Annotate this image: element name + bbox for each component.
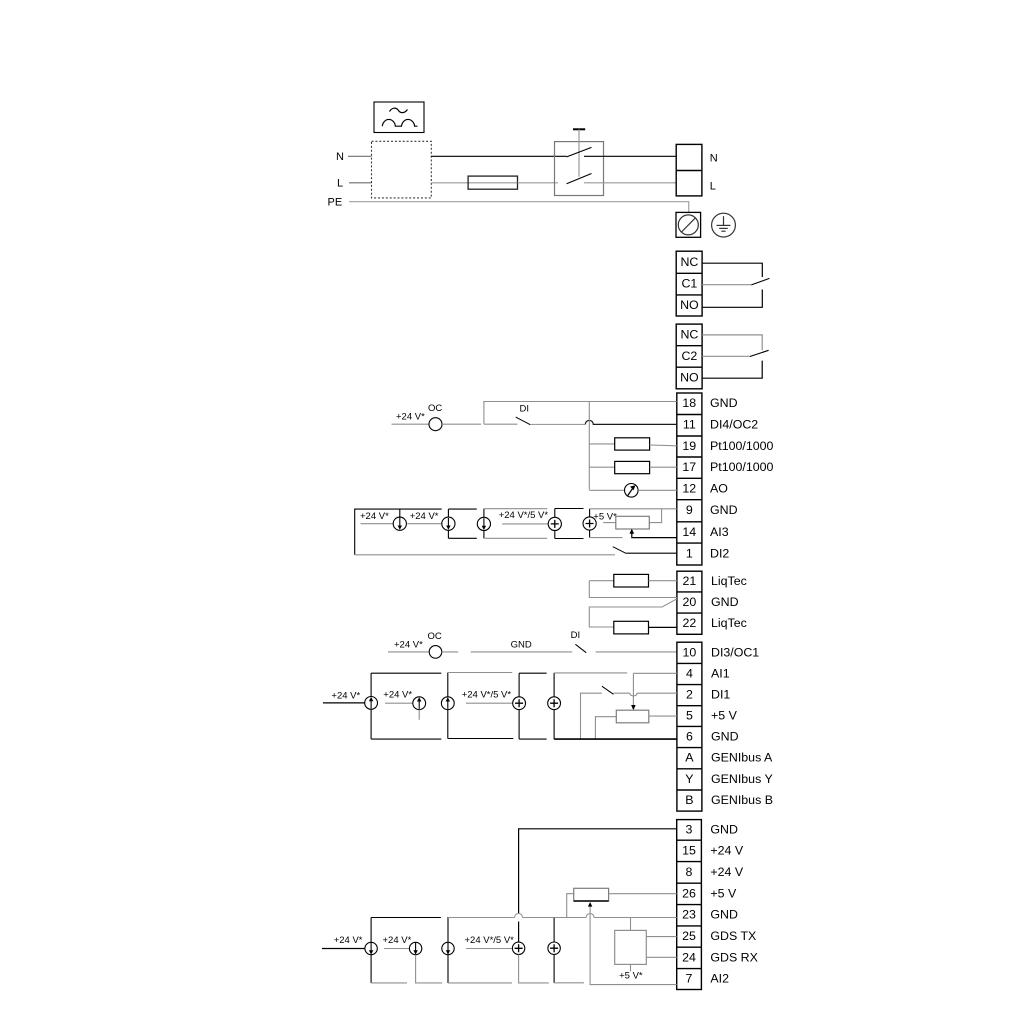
svg-text:7: 7 xyxy=(686,972,693,986)
svg-text:+24 V: +24 V xyxy=(710,865,743,879)
svg-text:DI: DI xyxy=(571,630,581,641)
svg-text:C1: C1 xyxy=(681,277,697,291)
svg-text:5: 5 xyxy=(686,709,693,723)
svg-text:AO: AO xyxy=(710,482,728,496)
svg-text:+24 V*: +24 V* xyxy=(331,690,360,701)
svg-text:N: N xyxy=(710,153,718,165)
svg-text:Pt100/1000: Pt100/1000 xyxy=(710,460,773,474)
svg-text:GND: GND xyxy=(710,503,738,517)
svg-text:+24 V: +24 V xyxy=(710,843,743,857)
svg-text:1: 1 xyxy=(686,547,693,561)
svg-text:14: 14 xyxy=(682,525,696,539)
svg-text:26: 26 xyxy=(682,886,696,900)
svg-text:GDS RX: GDS RX xyxy=(710,950,758,964)
svg-text:GENIbus Y: GENIbus Y xyxy=(711,772,773,786)
svg-text:DI3/OC1: DI3/OC1 xyxy=(711,645,759,659)
svg-text:DI2: DI2 xyxy=(710,547,729,561)
svg-text:+24 V*/5 V*: +24 V*/5 V* xyxy=(499,510,549,521)
svg-text:+5 V: +5 V xyxy=(711,709,738,723)
svg-text:DI: DI xyxy=(520,404,530,415)
svg-text:20: 20 xyxy=(683,595,697,609)
svg-text:DI4/OC2: DI4/OC2 xyxy=(710,418,758,432)
svg-text:B: B xyxy=(685,793,693,807)
svg-text:NO: NO xyxy=(680,298,699,312)
svg-text:NC: NC xyxy=(680,328,698,342)
svg-text:NO: NO xyxy=(680,371,699,385)
svg-text:9: 9 xyxy=(686,503,693,517)
svg-text:+24 V*: +24 V* xyxy=(396,411,425,422)
svg-text:GND: GND xyxy=(710,396,738,410)
svg-text:+24 V*: +24 V* xyxy=(394,640,423,651)
svg-text:GENIbus B: GENIbus B xyxy=(711,793,773,807)
svg-text:+24 V*/5 V*: +24 V*/5 V* xyxy=(462,690,512,701)
svg-text:10: 10 xyxy=(683,645,697,659)
svg-text:LiqTec: LiqTec xyxy=(711,616,747,630)
svg-text:AI3: AI3 xyxy=(710,525,729,539)
svg-text:25: 25 xyxy=(682,929,696,943)
svg-text:A: A xyxy=(685,751,694,765)
svg-text:GND: GND xyxy=(710,822,738,836)
svg-text:GND: GND xyxy=(710,908,738,922)
svg-text:OC: OC xyxy=(428,631,442,642)
svg-text:2: 2 xyxy=(686,688,693,702)
svg-text:11: 11 xyxy=(683,418,696,432)
svg-text:6: 6 xyxy=(686,730,693,744)
svg-text:NC: NC xyxy=(680,255,698,269)
svg-text:+24 V*: +24 V* xyxy=(334,935,363,946)
svg-text:L: L xyxy=(337,178,343,190)
svg-text:L: L xyxy=(710,181,716,193)
svg-text:PE: PE xyxy=(328,197,343,209)
svg-text:+24 V*: +24 V* xyxy=(383,690,412,701)
svg-text:+24 V*: +24 V* xyxy=(360,511,389,522)
svg-text:GENIbus A: GENIbus A xyxy=(711,751,773,765)
svg-text:+24 V*: +24 V* xyxy=(410,511,439,522)
svg-text:19: 19 xyxy=(682,439,696,453)
svg-text:N: N xyxy=(336,151,344,163)
svg-text:18: 18 xyxy=(682,396,696,410)
svg-text:GDS TX: GDS TX xyxy=(710,929,756,943)
svg-text:+5 V*: +5 V* xyxy=(593,511,617,522)
svg-text:21: 21 xyxy=(683,574,697,588)
svg-text:15: 15 xyxy=(682,843,696,857)
svg-text:Pt100/1000: Pt100/1000 xyxy=(710,439,773,453)
svg-text:GND: GND xyxy=(711,730,739,744)
svg-text:3: 3 xyxy=(686,822,693,836)
svg-text:GND: GND xyxy=(511,640,532,651)
svg-text:+24 V*/5 V*: +24 V*/5 V* xyxy=(465,935,515,946)
svg-text:+5 V*: +5 V* xyxy=(619,971,643,982)
svg-text:AI1: AI1 xyxy=(711,667,730,681)
svg-text:4: 4 xyxy=(686,667,693,681)
svg-text:22: 22 xyxy=(683,616,697,630)
svg-text:17: 17 xyxy=(682,460,696,474)
svg-text:C2: C2 xyxy=(681,349,697,363)
svg-text:12: 12 xyxy=(682,482,696,496)
svg-text:AI2: AI2 xyxy=(710,972,729,986)
svg-text:LiqTec: LiqTec xyxy=(711,574,747,588)
svg-text:Y: Y xyxy=(685,772,693,786)
svg-text:GND: GND xyxy=(711,595,739,609)
svg-text:DI1: DI1 xyxy=(711,688,730,702)
svg-text:+24 V*: +24 V* xyxy=(383,935,412,946)
svg-text:23: 23 xyxy=(682,908,696,922)
svg-text:+5 V: +5 V xyxy=(710,886,737,900)
svg-text:24: 24 xyxy=(682,950,696,964)
svg-text:8: 8 xyxy=(686,865,693,879)
svg-text:OC: OC xyxy=(428,403,442,414)
